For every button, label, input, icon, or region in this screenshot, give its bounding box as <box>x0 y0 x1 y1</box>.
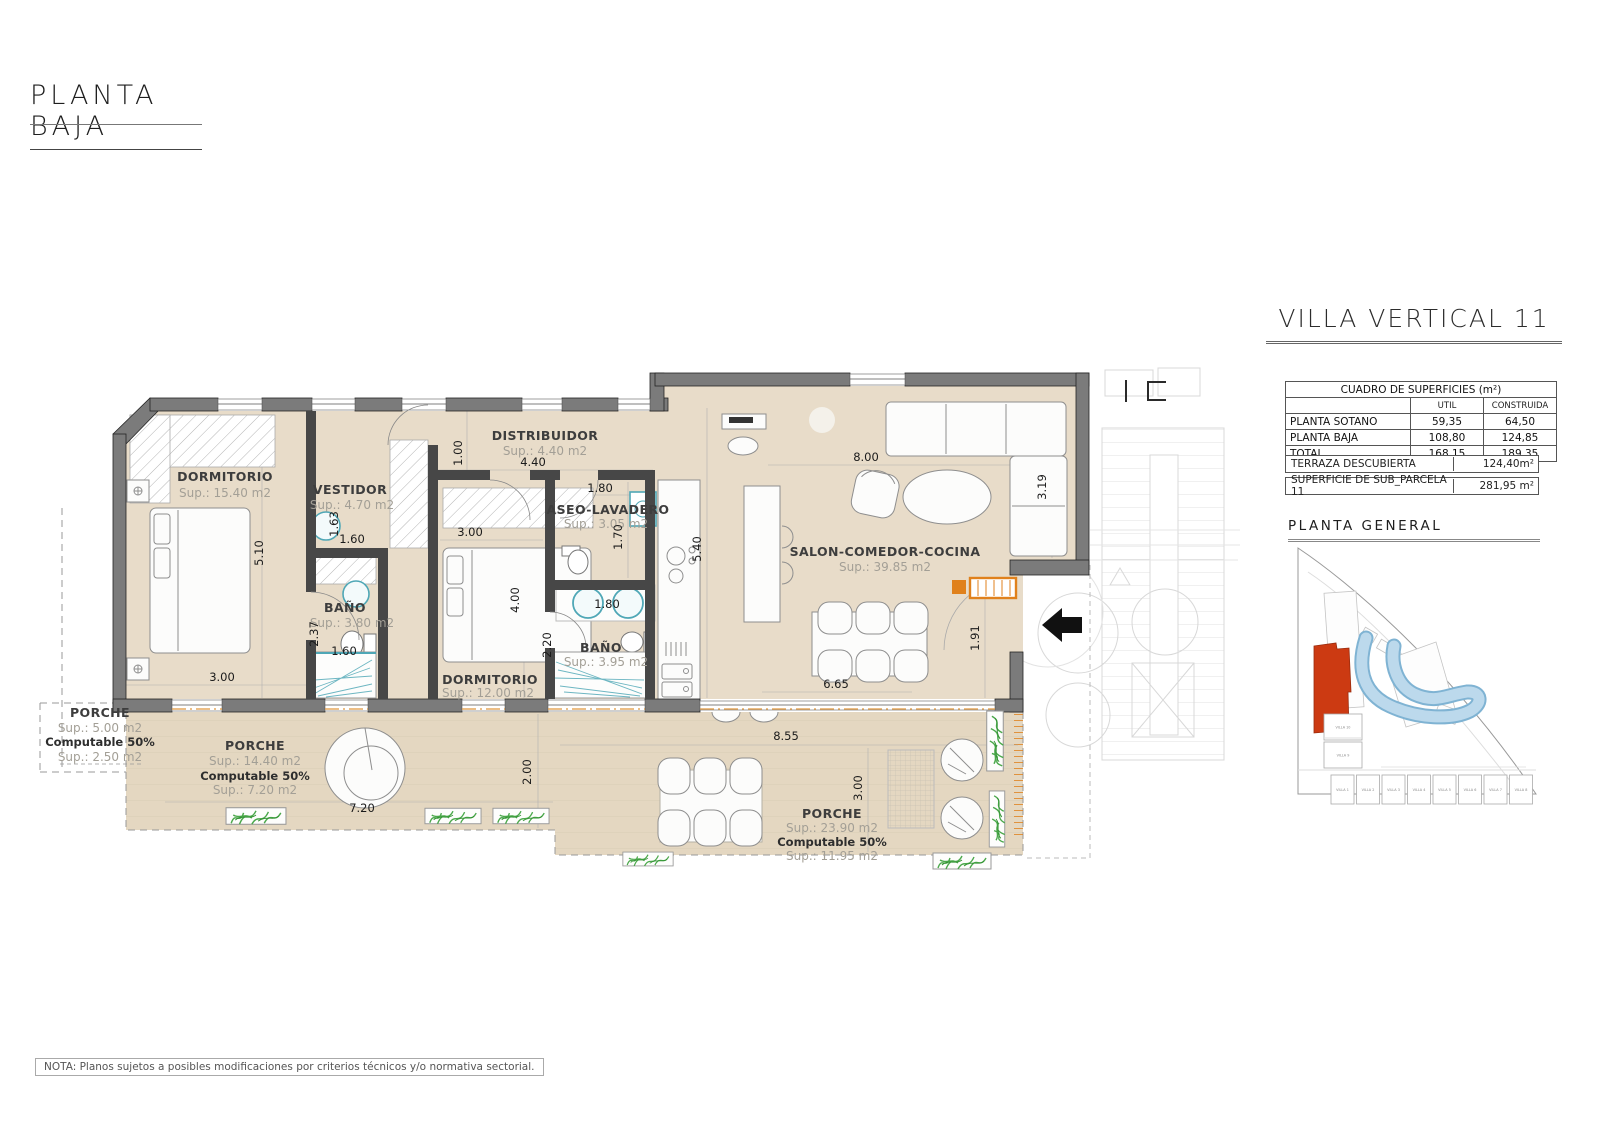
dimension-label: 1.00 <box>451 440 465 466</box>
room-label: BAÑO <box>580 640 622 655</box>
site-villa-label: VILLA 8 <box>1515 788 1528 792</box>
room-label: DORMITORIO <box>442 672 538 687</box>
dimension-label: 8.00 <box>853 450 879 464</box>
room-sup: Sup.: 23.90 m2 <box>786 821 878 835</box>
surfaces-col-util: UTIL <box>1411 398 1484 414</box>
outdoor-rug-icon <box>888 750 934 828</box>
room-sup: Sup.: 2.50 m2 <box>58 750 142 764</box>
site-villa-label: VILLA 9 <box>1337 754 1350 758</box>
siteplan-title: PLANTA GENERAL <box>1288 518 1540 542</box>
dimension-label: 2.20 <box>540 632 554 658</box>
terraza-label: TERRAZA DESCUBIERTA <box>1286 457 1453 471</box>
page: { "page": { "title": "PLANTA BAJA", "not… <box>0 0 1600 1130</box>
entrance-arrow-icon <box>1042 608 1082 642</box>
room-label: ASEO-LAVADERO <box>547 502 670 517</box>
dimension-label: 1.80 <box>587 481 613 495</box>
dimension-label: 4.00 <box>508 587 522 613</box>
porch-dining-icon <box>658 758 762 846</box>
page-title-underline <box>30 124 202 125</box>
row-util: 108,80 <box>1411 430 1484 446</box>
stairs-to-basement-icon <box>970 578 1016 598</box>
site-villa-label: VILLA 5 <box>1438 788 1451 792</box>
row-label: PLANTA SOTANO <box>1286 414 1411 430</box>
dimension-label: 1.70 <box>611 524 625 550</box>
row-construida: 64,50 <box>1484 414 1557 430</box>
page-title: PLANTA BAJA <box>30 80 202 150</box>
row-construida: 124,85 <box>1484 430 1557 446</box>
dimension-label: 1.80 <box>594 597 620 611</box>
dimension-label: 2.00 <box>520 759 534 785</box>
egg-chair-icon <box>325 728 405 808</box>
site-villa-label: VILLA 4 <box>1413 788 1426 792</box>
room-computable: Computable 50% <box>777 835 887 849</box>
room-sup: Sup.: 14.40 m2 <box>209 754 301 768</box>
parcela-label: SUPERFICIE DE SUB_PARCELA 11 <box>1286 473 1453 499</box>
room-sup: Sup.: 3.05 m2 <box>564 517 648 531</box>
dimension-label: 1.91 <box>968 625 982 651</box>
surfaces-table-title: CUADRO DE SUPERFICIES (m²) <box>1286 382 1557 398</box>
floor-plan-drawing: DORMITORIO Sup.: 15.40 m2 VESTIDOR Sup.:… <box>20 360 1240 880</box>
room-label: PORCHE <box>70 705 130 720</box>
room-label: BAÑO <box>324 600 366 615</box>
room-computable: Computable 50% <box>200 769 310 783</box>
dimension-label: 8.55 <box>773 729 799 743</box>
site-villa-label: VILLA 2 <box>1362 788 1375 792</box>
dimension-label: 6.65 <box>823 677 849 691</box>
row-label: PLANTA BAJA <box>1286 430 1411 446</box>
ceiling-light-icon <box>809 407 835 433</box>
room-sup: Sup.: 3.80 m2 <box>310 616 394 630</box>
room-sup: Sup.: 12.00 m2 <box>442 686 534 700</box>
room-label: DISTRIBUIDOR <box>492 428 599 443</box>
site-villa-label: VILLA 3 <box>1387 788 1400 792</box>
dimension-label: 3.19 <box>1035 474 1049 500</box>
dimension-label: 3.00 <box>851 775 865 801</box>
porch-edge-orange-strip <box>1014 712 1023 840</box>
parcela-value: 281,95 m² <box>1453 479 1538 493</box>
room-label: SALON-COMEDOR-COCINA <box>790 544 981 559</box>
room-sup: Sup.: 5.00 m2 <box>58 721 142 735</box>
site-villa-label: VILLA 10 <box>1336 726 1351 730</box>
room-sup: Sup.: 11.95 m2 <box>786 849 878 863</box>
surfaces-col-construida: CONSTRUIDA <box>1484 398 1557 414</box>
shower-icon <box>310 652 376 698</box>
villa-title: VILLA VERTICAL 11 <box>1266 304 1562 344</box>
room-sup: Sup.: 4.70 m2 <box>310 498 394 512</box>
room-label: DORMITORIO <box>177 469 273 484</box>
dimension-label: 3.00 <box>457 525 483 539</box>
dimension-label: 4.40 <box>520 455 546 469</box>
table-row: PLANTA BAJA 108,80 124,85 <box>1286 430 1557 446</box>
site-villa-label: VILLA 7 <box>1489 788 1502 792</box>
dimension-label: 5.10 <box>252 540 266 566</box>
site-plan-drawing: VILLA 10VILLA 9 VILLA 1VILLA 2VILLA 3VIL… <box>1286 542 1550 816</box>
coffee-table-icon <box>903 470 991 524</box>
site-villa-label: VILLA 6 <box>1464 788 1477 792</box>
dimension-label: 5.40 <box>690 536 704 562</box>
dining-table-icon <box>812 602 928 682</box>
dimension-label: 1.60 <box>331 644 357 658</box>
room-label: VESTIDOR <box>313 482 387 497</box>
surfaces-col-empty <box>1286 398 1411 414</box>
room-sup: Sup.: 7.20 m2 <box>213 783 297 797</box>
room-sup: Sup.: 39.85 m2 <box>839 560 931 574</box>
parcela-bar: SUPERFICIE DE SUB_PARCELA 11 281,95 m² <box>1285 477 1539 495</box>
room-sup: Sup.: 3.95 m2 <box>564 655 648 669</box>
room-sup: Sup.: 15.40 m2 <box>179 486 271 500</box>
row-util: 59,35 <box>1411 414 1484 430</box>
dimension-label: 7.20 <box>349 801 375 815</box>
dimension-label: 3.00 <box>209 670 235 684</box>
ghost-wall-marks <box>1126 380 1166 402</box>
room-computable: Computable 50% <box>45 735 155 749</box>
terraza-value: 124,40m² <box>1453 457 1538 471</box>
terraza-bar: TERRAZA DESCUBIERTA 124,40m² <box>1285 455 1539 473</box>
note-box: NOTA: Planos sujetos a posibles modifica… <box>35 1058 544 1076</box>
dimension-label: 1.60 <box>339 532 365 546</box>
dimension-label: 2.37 <box>307 621 321 647</box>
site-villa-label: VILLA 1 <box>1336 788 1349 792</box>
room-label: PORCHE <box>802 806 862 821</box>
room-label: PORCHE <box>225 738 285 753</box>
orange-marker <box>952 580 966 594</box>
table-row: PLANTA SOTANO 59,35 64,50 <box>1286 414 1557 430</box>
surfaces-table: CUADRO DE SUPERFICIES (m²) UTIL CONSTRUI… <box>1285 381 1557 462</box>
